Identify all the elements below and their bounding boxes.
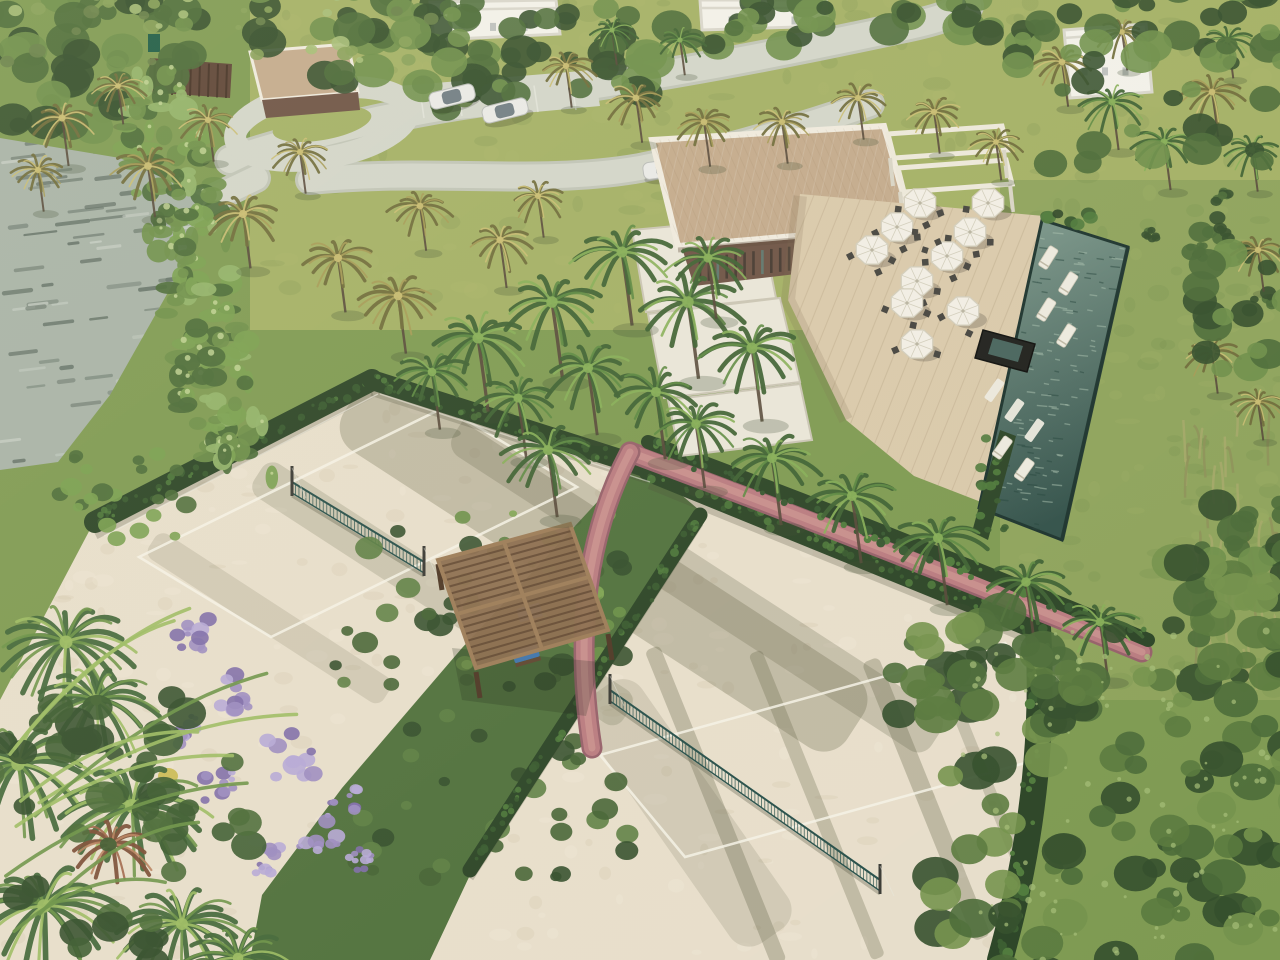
- light-wash: [0, 0, 1280, 960]
- scene-svg: [0, 0, 1280, 960]
- aerial-rendering: [0, 0, 1280, 960]
- bottom-left-foliage: [0, 0, 1280, 960]
